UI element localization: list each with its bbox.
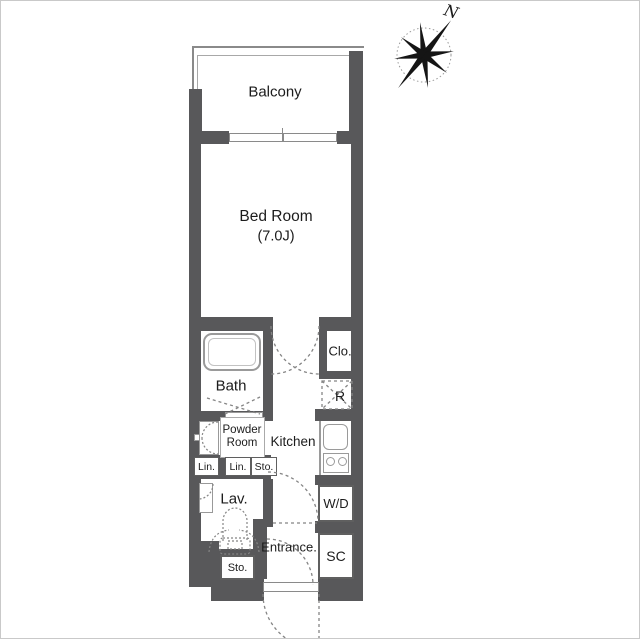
window-center-tick bbox=[282, 128, 283, 137]
compass-north-label: N bbox=[442, 1, 461, 23]
linen-tag-2: Lin. bbox=[225, 457, 251, 476]
powder-vanity-icon bbox=[199, 421, 219, 455]
floor-plan-canvas: N Powder Room Lin. Lin. Sto. bbox=[0, 0, 640, 639]
wall-balcony-right bbox=[349, 51, 363, 143]
kitchen-door-swing-icon bbox=[268, 472, 318, 522]
powder-room-label: Powder Room bbox=[220, 424, 264, 450]
kitchen-sink-icon bbox=[323, 424, 348, 450]
storage-mid-label: Sto. bbox=[255, 461, 274, 473]
powder-vanity-faucet-icon bbox=[194, 434, 200, 441]
bedroom-size-label: (7.0J) bbox=[257, 229, 294, 246]
shoe-closet-box: SC bbox=[318, 533, 354, 579]
wall-wd-bottom bbox=[315, 521, 363, 533]
window-pane-right bbox=[283, 133, 337, 142]
stove-burner-left-icon bbox=[326, 457, 335, 466]
lav-cabinet-icon bbox=[199, 483, 213, 513]
shoe-closet-label: SC bbox=[326, 548, 345, 564]
wall-counter-bottom bbox=[315, 475, 363, 485]
bedroom-label: Bed Room bbox=[239, 208, 312, 226]
washer-dryer-label: W/D bbox=[323, 496, 348, 511]
entrance-door-leaf bbox=[263, 582, 319, 592]
closet-label: Clo. bbox=[328, 345, 351, 360]
fridge-label: R bbox=[335, 388, 345, 404]
compass-ring-icon bbox=[397, 28, 451, 82]
stove-burner-right-icon bbox=[338, 457, 347, 466]
linen-tag-2-label: Lin. bbox=[230, 461, 247, 473]
wall-bedroom-bottom-left bbox=[189, 317, 271, 331]
compass-needle-north-icon bbox=[421, 20, 451, 57]
balcony-label: Balcony bbox=[248, 83, 301, 100]
storage-bottom-label: Sto. bbox=[228, 562, 248, 574]
bathtub-inner-line bbox=[208, 338, 256, 366]
storage-mid-tag: Sto. bbox=[251, 457, 277, 476]
bath-label: Bath bbox=[216, 377, 247, 394]
linen-tag-1-label: Lin. bbox=[198, 461, 215, 473]
wall-closet-left bbox=[319, 317, 327, 379]
window-pane-left bbox=[229, 133, 283, 142]
storage-bottom-box: Sto. bbox=[220, 555, 255, 580]
linen-tag-1: Lin. bbox=[194, 457, 219, 476]
entrance-label: Entrance. bbox=[261, 541, 317, 556]
wall-closet-bottom bbox=[319, 371, 363, 379]
washer-dryer-box: W/D bbox=[318, 485, 354, 522]
wall-bath-right bbox=[263, 317, 273, 421]
bedroom-door-swing-icon bbox=[271, 326, 319, 374]
lavatory-label: Lav. bbox=[220, 490, 247, 507]
wall-counter-top bbox=[315, 409, 363, 421]
kitchen-label: Kitchen bbox=[270, 434, 315, 450]
